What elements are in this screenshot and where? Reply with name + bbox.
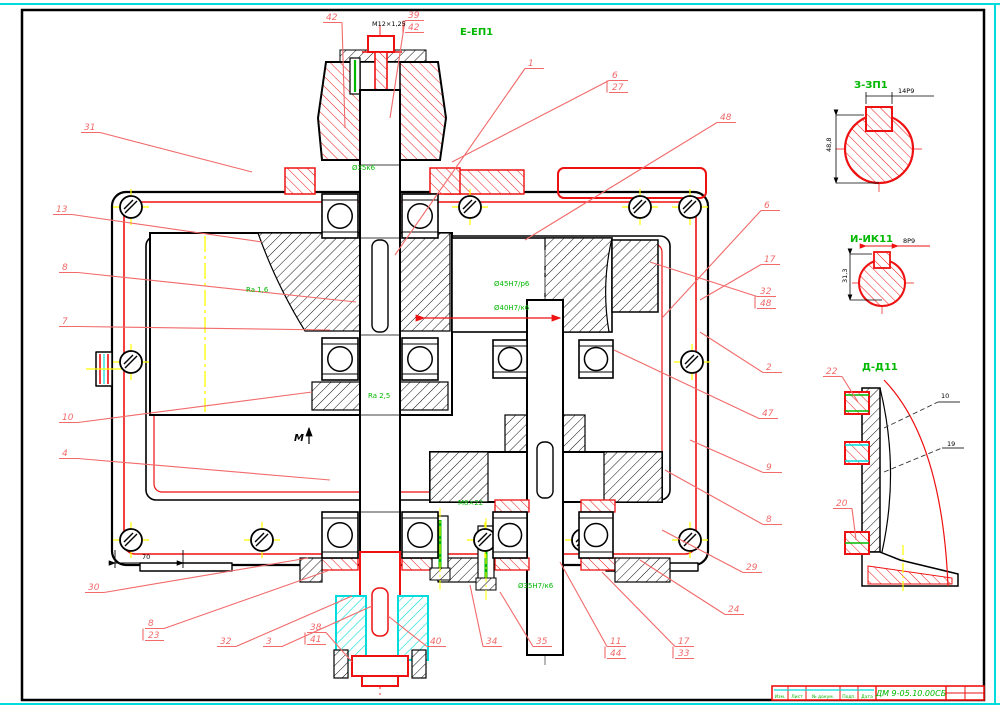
seal: [495, 500, 529, 512]
dimension-text: 14Р9: [898, 87, 914, 95]
detail-z-label: З-ЗП1: [854, 80, 888, 91]
callout-number: 17: [764, 255, 776, 265]
callout-number: 39: [408, 11, 420, 21]
callout-number: 42: [326, 13, 338, 23]
callout-31: 31: [81, 123, 252, 172]
dimension-text: М12×1,25: [372, 20, 406, 28]
callout-number: 40: [430, 637, 442, 647]
seal: [581, 558, 615, 570]
callout-number: 48: [760, 299, 772, 309]
section-e-label: Е-ЕП1: [460, 27, 493, 38]
callout-2: 2: [700, 332, 782, 373]
callout-number: 4: [62, 449, 68, 459]
ball-bearing: [322, 512, 358, 558]
bearing-bracket: [300, 558, 322, 582]
flange-bolt: [845, 442, 869, 464]
callout-number: 42: [408, 23, 420, 33]
callout-6: 627: [452, 71, 628, 162]
cad-drawing-page: М З-ЗП1 И-ИК11 Д-Д11: [0, 0, 1000, 715]
dimension-text: 19: [947, 440, 955, 448]
surface-dimension-note: Ra 2,5: [368, 392, 390, 400]
callout-number: 32: [220, 637, 232, 647]
surface-dimension-note: Ø35Н7/к6: [518, 582, 554, 590]
callout-number: 8: [148, 619, 154, 629]
callout-number: 47: [762, 409, 774, 419]
callout-number: 9: [766, 463, 772, 473]
shaft-keyway: [537, 442, 553, 498]
surface-dimension-note: Ø35к6: [352, 164, 376, 172]
callout-number: 8: [766, 515, 772, 525]
surface-dimension-note: Ø40Н7/к6: [494, 304, 530, 312]
callout-number: 11: [610, 637, 621, 647]
detail-view-i: И-ИК11: [850, 234, 930, 314]
title-block-col-label: Изм.: [775, 694, 786, 700]
callout-number: 10: [62, 413, 74, 423]
ball-bearing: [493, 340, 527, 378]
shaft-keyway-red: [372, 588, 388, 636]
dimension-text: 31,3: [841, 269, 849, 283]
callout-number: 3: [266, 637, 272, 647]
callout-number: 41: [310, 635, 321, 645]
ball-bearing: [402, 512, 438, 558]
doc-number: ДМ 9-05.10.00СБ: [875, 689, 947, 698]
seal: [322, 558, 358, 570]
callout-number: 44: [610, 649, 622, 659]
ball-bearing: [322, 194, 358, 238]
detail-d-leaders: [884, 402, 964, 472]
callout-number: 31: [84, 123, 95, 133]
callout-number: 35: [536, 637, 548, 647]
callout-number: 22: [826, 367, 838, 377]
surface-dimension-note: Ø45Н7/р6: [494, 280, 530, 288]
drawing-canvas[interactable]: М З-ЗП1 И-ИК11 Д-Д11: [0, 0, 1000, 715]
seal-cover: [430, 168, 460, 194]
seal: [581, 500, 615, 512]
title-block-col-label: Подп.: [842, 694, 856, 700]
surface-dimension-note: М8×22: [458, 499, 483, 507]
callout-number: 20: [836, 499, 848, 509]
seal: [495, 558, 529, 570]
callout-number: 17: [678, 637, 690, 647]
seal-cover: [285, 168, 315, 194]
dimension-text: 70: [142, 553, 150, 561]
surface-dimension-note: Ra 1,6: [246, 286, 269, 294]
callout-number: 27: [612, 83, 624, 93]
break-line-red: [884, 380, 948, 586]
callout-number: 7: [62, 317, 68, 327]
callout-number: 24: [728, 605, 740, 615]
ball-bearing: [402, 338, 438, 380]
locking-stud: [350, 58, 360, 94]
keyway-section: [874, 252, 890, 268]
title-block-col-label: Лист: [791, 694, 803, 700]
callout-number: 23: [148, 631, 160, 641]
ball-bearing: [579, 340, 613, 378]
shaft-nut: [334, 650, 426, 686]
flange-bolt: [845, 392, 869, 414]
callout-number: 1: [528, 59, 534, 69]
flange-bolt: [845, 532, 869, 554]
callout-number: 33: [678, 649, 690, 659]
housing-web: [612, 240, 658, 312]
callout-number: 32: [760, 287, 772, 297]
keyway-section: [866, 107, 892, 131]
detail-i-label: И-ИК11: [850, 234, 893, 245]
dimension-text: 48,8: [825, 138, 833, 152]
view-m-label: М: [294, 433, 304, 444]
detail-d-label: Д-Д11: [862, 362, 898, 373]
callout-number: 34: [486, 637, 498, 647]
housing-foot: [140, 563, 232, 571]
ball-bearing: [493, 512, 527, 558]
callout-number: 30: [88, 583, 100, 593]
callout-number: 6: [612, 71, 618, 81]
dimension-text: 10: [941, 392, 949, 400]
shaft-keyway: [372, 240, 388, 332]
callout-number: 48: [720, 113, 732, 123]
callout-number: 29: [746, 563, 758, 573]
title-block: ДМ 9-05.10.00СБ Изм.Лист№ докум.Подп.Дат…: [772, 686, 984, 700]
dimension-text: 8Р9: [903, 237, 915, 245]
detail-view-z: З-ЗП1: [836, 80, 934, 192]
callout-number: 8: [62, 263, 68, 273]
ball-bearing: [322, 338, 358, 380]
callout-number: 6: [764, 201, 770, 211]
callout-number: 13: [56, 205, 68, 215]
ball-bearing: [579, 512, 613, 558]
callout-number: 38: [310, 623, 322, 633]
title-block-col-label: Дата: [861, 694, 873, 700]
title-block-col-label: № докум.: [812, 694, 834, 700]
callout-number: 2: [766, 363, 772, 373]
